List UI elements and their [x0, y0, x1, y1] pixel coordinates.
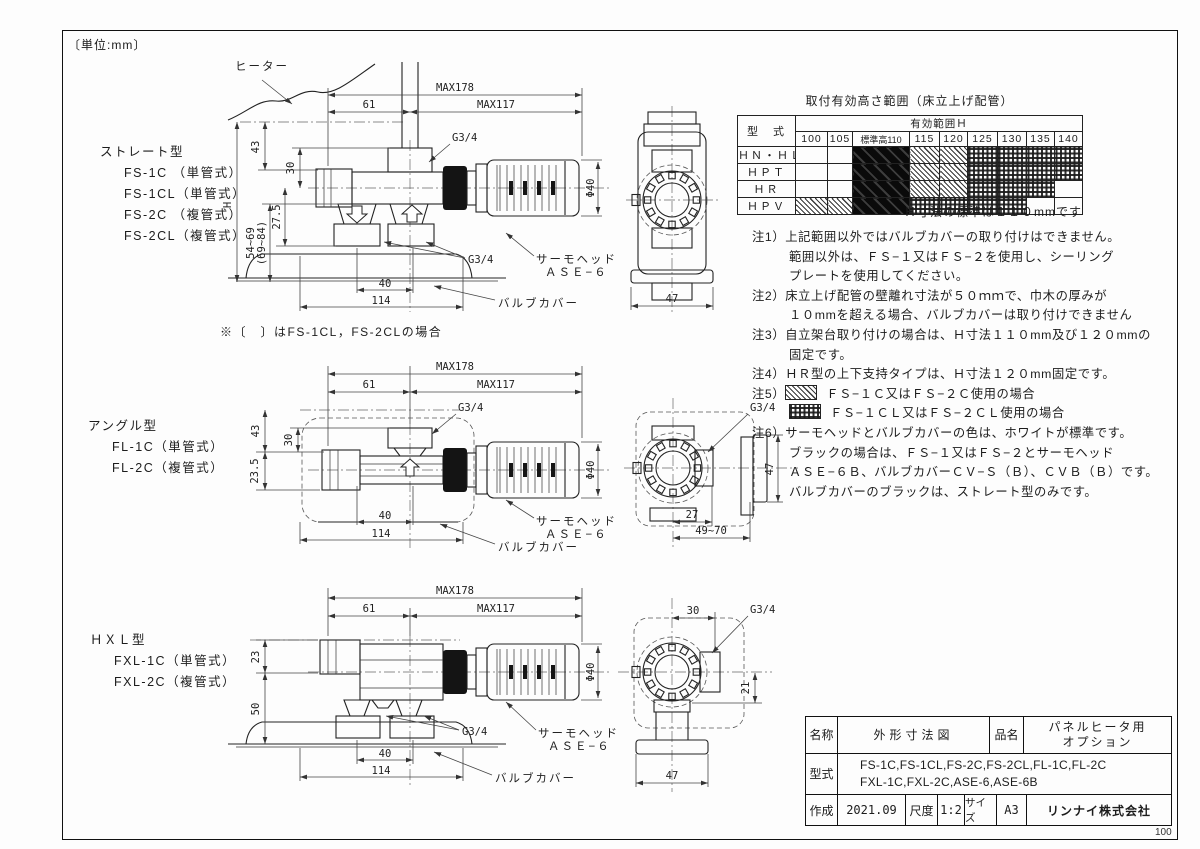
title-block: 名称 外形寸法図 品名 パネルヒータ用 オプション 型式 FS-1C,FS-1C… [805, 716, 1172, 826]
scale-value: 1:2 [938, 795, 965, 825]
dim-69-84: (69~84) [256, 221, 268, 265]
range-cell [968, 164, 998, 181]
note-text: 自立架台取り付けの場合は、Ｈ寸法１１０mm及び１２０mmの [785, 328, 1151, 342]
notes-block: 注1）上記範囲以外ではバルブカバーの取り付けはできません。 範囲以外は、ＦＳ−１… [752, 228, 1178, 502]
range-cell [940, 164, 968, 181]
range-cell [968, 147, 998, 164]
note-label: 注6） [752, 426, 785, 440]
date-label: 作成 [806, 795, 838, 825]
dim-max178: MAX178 [436, 585, 474, 597]
dim-40: 40 [379, 748, 392, 760]
note-label: 注2） [752, 289, 785, 303]
straight-side-view: 47 [626, 106, 718, 314]
model-item: FS-1CL（単管式） [100, 184, 246, 205]
item-name-line1: パネルヒータ用 [1048, 720, 1146, 735]
range-cell [828, 181, 853, 198]
dim-max178: MAX178 [436, 82, 474, 94]
range-cell [853, 164, 910, 181]
size-label: サイズ [965, 795, 997, 825]
range-cell [910, 147, 940, 164]
col-header: 135 [1027, 132, 1055, 147]
dim-61: 61 [363, 379, 376, 391]
dim-max117: MAX117 [477, 99, 515, 111]
dim-phi40: Φ40 [585, 179, 597, 198]
hatch-legend-swatch [785, 385, 817, 400]
dim-114: 114 [372, 528, 391, 540]
bracket-note: ※〔 〕はFS-1CL，FS-2CLの場合 [220, 323, 442, 340]
scale-label: 尺度 [906, 795, 938, 825]
range-cell [796, 164, 828, 181]
col-header: 115 [910, 132, 940, 147]
range-cell [853, 147, 910, 164]
range-cell [796, 147, 828, 164]
col-header: 105 [828, 132, 853, 147]
col-header: 125 [968, 132, 998, 147]
model-list: FS-1C,FS-1CL,FS-2C,FS-2CL,FL-1C,FL-2C FX… [838, 754, 1171, 794]
range-cell [940, 147, 968, 164]
dim-114: 114 [372, 765, 391, 777]
note-label: 注4） [752, 367, 785, 381]
model-item: FXL-1C（単管式） [90, 651, 236, 672]
range-cell [998, 164, 1027, 181]
dim-23: 23 [250, 651, 262, 664]
hxl-type-list: ＨＸＬ型 FXL-1C（単管式） FXL-2C（複管式） [90, 630, 236, 693]
range-cell [1055, 181, 1083, 198]
range-cell [1055, 164, 1083, 181]
checker-legend-swatch [789, 404, 821, 419]
dim-114: 114 [372, 295, 391, 307]
dim-40: 40 [379, 278, 392, 290]
dim-40: 40 [379, 510, 392, 522]
dim-max117: MAX117 [477, 603, 515, 615]
g34-bottom-label: G3/4 [462, 726, 487, 738]
note-text: ＦＳ−１Ｃ又はＦＳ−２Ｃ使用の場合 [826, 387, 1035, 401]
range-cell [1055, 147, 1083, 164]
range-header: 有効範囲Ｈ [796, 116, 1083, 132]
row-model: ＨＰＴ [738, 164, 796, 181]
dim-49-70: 49~70 [695, 525, 727, 537]
range-cell [796, 181, 828, 198]
dim-phi40: Φ40 [585, 663, 597, 682]
unit-label: 〔単位:mm〕 [68, 36, 146, 53]
dim-47: 47 [666, 293, 679, 305]
straight-main-view: ヒーター H 43 30 27.5 54~69 (69~84) MAX178 6… [222, 60, 617, 312]
g34-bottom-label: G3/4 [468, 254, 493, 266]
straight-type-title: ストレート型 [100, 142, 246, 163]
dim-max117: MAX117 [477, 379, 515, 391]
range-cell [910, 181, 940, 198]
g34-side-label: G3/4 [750, 604, 775, 616]
range-cell [998, 147, 1027, 164]
note-text: バルブカバーのブラックは、ストレート型のみです。 [752, 483, 1178, 503]
dim-47: 47 [666, 770, 679, 782]
g34-top-label: G3/4 [458, 402, 483, 414]
note-text: ＦＳ−１ＣＬ又はＦＳ−２ＣＬ使用の場合 [830, 406, 1065, 420]
item-label: 品名 [990, 717, 1024, 753]
height-table-title: 取付有効高さ範囲（床立上げ配管） [737, 92, 1082, 109]
hxl-type-title: ＨＸＬ型 [90, 630, 236, 651]
note-text: ＨＲ型の上下支持タイプは、Ｈ寸法１２０mm固定です。 [785, 367, 1115, 381]
company-name: リンナイ株式会社 [1027, 795, 1171, 825]
model-item: FS-2C （複管式） [100, 205, 246, 226]
model-header: 型 式 [738, 116, 796, 147]
col-header: 140 [1055, 132, 1083, 147]
col-header: 120 [940, 132, 968, 147]
dim-61: 61 [363, 99, 376, 111]
page-number: 100 [1155, 827, 1172, 838]
dim-43: 43 [250, 141, 262, 154]
dim-max178: MAX178 [436, 361, 474, 373]
straight-type-list: ストレート型 FS-1C （単管式） FS-1CL（単管式） FS-2C （複管… [100, 142, 246, 247]
note-text: 床立上げ配管の壁離れ寸法が５０ｍｍで、巾木の厚みが [785, 289, 1107, 303]
model-list-line2: FXL-1C,FXL-2C,ASE-6,ASE-6B [860, 774, 1038, 791]
row-model: ＨＮ・ＨＬ [738, 147, 796, 164]
range-cell [1027, 181, 1055, 198]
note-text: プレートを使用してください。 [752, 267, 1178, 287]
col-header: 100 [796, 132, 828, 147]
model-item: FXL-2C（複管式） [90, 672, 236, 693]
drawing-sheet: ヒーター H 43 30 27.5 54~69 (69~84) MAX178 6… [0, 0, 1200, 849]
hxl-main-view: 23 50 MAX178 61 MAX117 G3/4 Φ40 40 114 サ… [228, 585, 619, 785]
range-cell [1027, 147, 1055, 164]
dim-50: 50 [250, 703, 262, 716]
note-text: １０mmを超える場合、バルブカバーは取り付けできません [752, 306, 1178, 326]
col-header: 130 [998, 132, 1027, 147]
model-list-line1: FS-1C,FS-1CL,FS-2C,FS-2CL,FL-1C,FL-2C [860, 757, 1106, 774]
range-cell [998, 181, 1027, 198]
range-cell [940, 181, 968, 198]
model-item: FS-1C （単管式） [100, 163, 246, 184]
dim-21: 21 [740, 682, 752, 695]
range-cell [828, 164, 853, 181]
note-text: 範囲以外は、ＦＳ−１又はＦＳ−２を使用し、シーリング [752, 248, 1178, 268]
g34-top-label: G3/4 [452, 132, 477, 144]
hxl-side-view: 30 G3/4 21 47 [618, 598, 775, 792]
name-label: 名称 [806, 717, 838, 753]
thermo-head-label: サーモヘッド [536, 515, 617, 528]
note-label: 注1） [752, 230, 785, 244]
thermo-head-label: サーモヘッド [538, 727, 619, 740]
item-name-line2: オプション [1062, 735, 1132, 750]
valve-cover-label: バルブカバー [498, 540, 579, 554]
note-text: サーモヘッドとバルブカバーの色は、ホワイトが標準です。 [785, 426, 1132, 440]
range-cell [828, 147, 853, 164]
row-model: ＨＲ [738, 181, 796, 198]
dim-43: 43 [250, 425, 262, 438]
range-cell [910, 164, 940, 181]
dim-30: 30 [687, 605, 700, 617]
heater-label: ヒーター [235, 60, 289, 73]
range-cell [1027, 164, 1055, 181]
thermo-head-model: ＡＳＥ−６ [545, 267, 608, 279]
dim-23-5: 23.5 [249, 458, 261, 483]
note-label: 注5） [752, 387, 785, 401]
valve-cover-label: バルブカバー [498, 296, 579, 310]
valve-cover-label: バルブカバー [495, 771, 576, 785]
effective-height-table: 型 式 有効範囲Ｈ 100 105 標準高110 115 120 125 130… [737, 115, 1083, 215]
dim-61: 61 [363, 603, 376, 615]
col-header: 標準高110 [853, 132, 910, 147]
size-value: A3 [997, 795, 1027, 825]
model-label: 型式 [806, 754, 838, 794]
range-cell [968, 181, 998, 198]
thermo-head-model: ＡＳＥ−６ [545, 529, 608, 541]
note-label: 注3） [752, 328, 785, 342]
item-name: パネルヒータ用 オプション [1024, 717, 1171, 753]
dim-30: 30 [285, 162, 297, 175]
table-footnote: Ｈ寸法の標準は１１０mmです [737, 203, 1082, 220]
range-cell [853, 181, 910, 198]
angle-main-view: 43 30 23.5 MAX178 61 MAX117 G3/4 Φ40 40 … [249, 361, 617, 554]
drawing-name: 外形寸法図 [838, 717, 990, 753]
angle-type-title: アングル型 [88, 416, 224, 437]
note-text: ブラックの場合は、ＦＳ−１又はＦＳ−２とサーモヘッド [752, 444, 1178, 464]
date-value: 2021.09 [838, 795, 906, 825]
thermo-head-label: サーモヘッド [536, 253, 617, 266]
model-item: FL-1C（単管式） [88, 437, 224, 458]
thermo-head-model: ＡＳＥ−６ [548, 741, 611, 753]
note-text: 固定です。 [752, 346, 1178, 366]
dim-phi40: Φ40 [585, 461, 597, 480]
dim-27: 27 [686, 509, 699, 521]
model-item: FS-2CL（複管式） [100, 226, 246, 247]
dim-30: 30 [283, 434, 295, 447]
note-text: ＡＳＥ−６Ｂ、バルブカバーＣＶ−Ｓ（Ｂ）、ＣＶＢ（Ｂ）です。 [752, 463, 1178, 483]
model-item: FL-2C（複管式） [88, 458, 224, 479]
angle-type-list: アングル型 FL-1C（単管式） FL-2C（複管式） [88, 416, 224, 479]
note-text: 上記範囲以外ではバルブカバーの取り付けはできません。 [785, 230, 1120, 244]
dim-27-5: 27.5 [271, 204, 283, 229]
